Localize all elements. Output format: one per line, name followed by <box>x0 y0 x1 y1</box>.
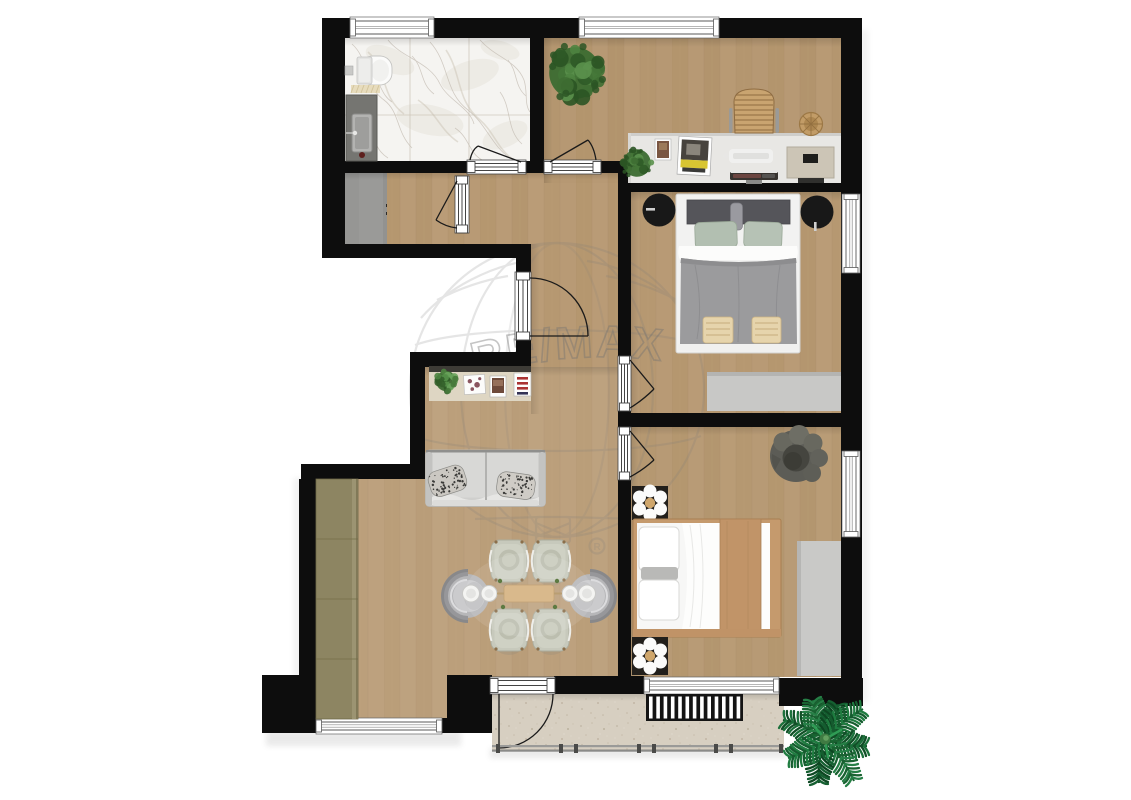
svg-text:R: R <box>594 542 602 553</box>
